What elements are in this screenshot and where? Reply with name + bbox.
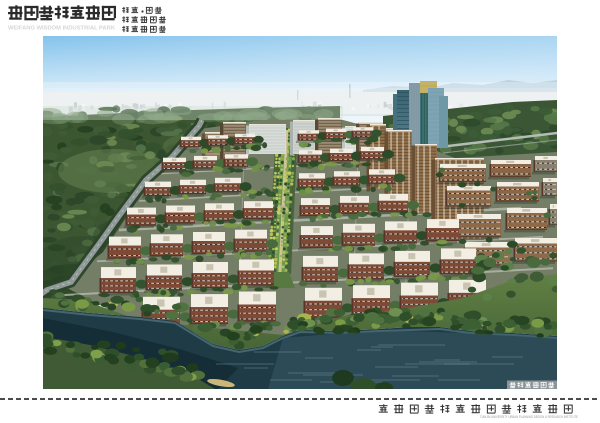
svg-text:TIANJIN UNIVERSITY URBAN PLANN: TIANJIN UNIVERSITY URBAN PLANNING DESIGN… [480,415,578,419]
